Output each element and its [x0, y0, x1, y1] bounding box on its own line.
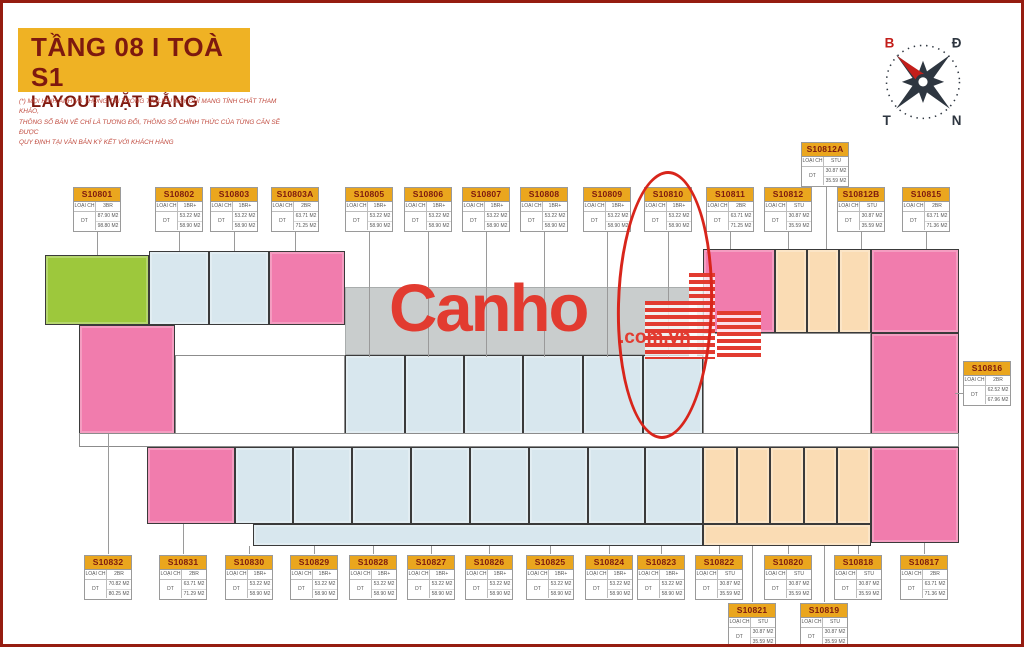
- floorplan-page: TẦNG 08 I TOÀ S1 LAYOUT MẶT BẰNG (*) MỌI…: [0, 0, 1024, 647]
- unit-id: S10812B: [838, 188, 884, 202]
- unit-area-label: DT: [211, 212, 233, 230]
- unit-area-value-2: 58.90 M2: [178, 222, 202, 231]
- leader-line-s10803a: [295, 232, 296, 251]
- leader-line-s10812a: [826, 187, 827, 249]
- unit-type-label: LOẠI CH: [838, 202, 860, 211]
- unit-type-label: LOẠI CH: [350, 570, 372, 579]
- plan-block-s10801: [45, 255, 149, 325]
- leader-line-s10805: [369, 232, 370, 357]
- unit-area-label: DT: [838, 212, 860, 230]
- unit-area-value-1: 30.87 M2: [787, 580, 811, 590]
- unit-type-label: LOẠI CH: [707, 202, 729, 211]
- unit-card-s10827: S10827 LOẠI CH 1BR+ DT 53.22 M2 58.90 M2: [407, 555, 455, 600]
- unit-area-label: DT: [765, 580, 787, 598]
- unit-type-label: LOẠI CH: [527, 570, 549, 579]
- unit-type-value: 1BR+: [660, 570, 684, 579]
- unit-area-value-2: 58.90 M2: [549, 590, 573, 599]
- unit-card-s10818: S10818 LOẠI CH STU DT 30.87 M2 35.59 M2: [834, 555, 882, 600]
- unit-id: S10823: [638, 556, 684, 570]
- unit-type-value: 1BR+: [372, 570, 396, 579]
- unit-card-s10807: S10807 LOẠI CH 1BR+ DT 53.22 M2 58.90 M2: [462, 187, 510, 232]
- unit-card-s10825: S10825 LOẠI CH 1BR+ DT 53.22 M2 58.90 M2: [526, 555, 574, 600]
- unit-area-value-2: 71.25 M2: [294, 222, 318, 231]
- disclaimer-line: THÔNG SỐ BẢN VẼ CHỈ LÀ TƯƠNG ĐỐI, THÔNG …: [19, 118, 289, 139]
- unit-type-label: LOẠI CH: [584, 202, 606, 211]
- unit-area-value-2: 71.29 M2: [182, 590, 206, 599]
- unit-id: S10831: [160, 556, 206, 570]
- unit-area-value-1: 63.71 M2: [729, 212, 753, 222]
- plan-block-s10826: [470, 447, 529, 524]
- unit-type-label: LOẠI CH: [586, 570, 608, 579]
- unit-type-value: STU: [718, 570, 742, 579]
- plan-block-s10805: [345, 355, 405, 434]
- unit-area-value-1: 53.22 M2: [485, 212, 509, 222]
- unit-area-value-1: 30.87 M2: [857, 580, 881, 590]
- unit-area-label: DT: [160, 580, 182, 598]
- unit-id: S10812A: [802, 143, 848, 157]
- leader-line-s10823: [661, 546, 662, 554]
- plan-block-corridor: [79, 433, 959, 447]
- disclaimer-line: (*) MỌI HÌNH ẢNH VÀ THÔNG TIN TRONG TÀI …: [19, 97, 289, 118]
- unit-id: S10828: [350, 556, 396, 570]
- unit-type-label: LOẠI CH: [765, 570, 787, 579]
- unit-type-label: LOẠI CH: [964, 376, 986, 385]
- compass-south-label: N: [952, 113, 962, 128]
- unit-id: S10826: [466, 556, 512, 570]
- unit-area-value-1: 63.71 M2: [923, 580, 947, 590]
- unit-id: S10832: [85, 556, 131, 570]
- leader-line-s10815: [926, 232, 927, 249]
- unit-type-value: STU: [787, 570, 811, 579]
- unit-area-value-2: 98.80 M2: [96, 222, 120, 231]
- leader-line-s10806: [428, 232, 429, 357]
- unit-area-value-2: 58.90 M2: [660, 590, 684, 599]
- unit-type-label: LOẠI CH: [801, 618, 823, 627]
- unit-area-label: DT: [964, 386, 986, 404]
- plan-block-s10825: [529, 447, 588, 524]
- unit-area-label: DT: [405, 212, 427, 230]
- unit-area-value-1: 62.52 M2: [986, 386, 1010, 396]
- unit-area-value-1: 53.22 M2: [368, 212, 392, 222]
- plan-block-s10819: [804, 447, 837, 524]
- unit-area-value-1: 63.71 M2: [925, 212, 949, 222]
- unit-id: S10825: [527, 556, 573, 570]
- unit-id: S10811: [707, 188, 753, 202]
- unit-area-label: DT: [707, 212, 729, 230]
- plan-block-s10812: [775, 249, 807, 333]
- unit-area-value-2: 58.90 M2: [430, 590, 454, 599]
- unit-area-value-1: 63.71 M2: [294, 212, 318, 222]
- unit-type-label: LOẠI CH: [521, 202, 543, 211]
- plan-block-s10817: [871, 447, 959, 543]
- unit-card-s10830: S10830 LOẠI CH 1BR+ DT 53.22 M2 58.90 M2: [225, 555, 273, 600]
- unit-area-value-2: 58.90 M2: [368, 222, 392, 231]
- plan-block-core-right: [703, 333, 871, 434]
- unit-type-label: LOẠI CH: [901, 570, 923, 579]
- unit-type-label: LOẠI CH: [226, 570, 248, 579]
- unit-card-s10805: S10805 LOẠI CH 1BR+ DT 53.22 M2 58.90 M2: [345, 187, 393, 232]
- unit-area-label: DT: [85, 580, 107, 598]
- unit-area-value-2: 80.25 M2: [107, 590, 131, 599]
- unit-area-value-1: 30.87 M2: [751, 628, 775, 638]
- unit-type-label: LOẠI CH: [85, 570, 107, 579]
- unit-card-s10832: S10832 LOẠI CH 2BR DT 70.82 M2 80.25 M2: [84, 555, 132, 600]
- unit-card-s10821: S10821 LOẠI CH STU DT 30.87 M2 35.59 M2: [728, 603, 776, 647]
- unit-area-value-1: 53.22 M2: [427, 212, 451, 222]
- plan-block-s10808: [523, 355, 583, 434]
- plan-block-s10803: [209, 251, 269, 325]
- unit-type-value: 1BR+: [485, 202, 509, 211]
- unit-type-value: 1BR+: [430, 570, 454, 579]
- unit-area-value-1: 30.87 M2: [718, 580, 742, 590]
- unit-area-value-1: 30.87 M2: [787, 212, 811, 222]
- unit-area-value-1: 63.71 M2: [182, 580, 206, 590]
- unit-id: S10819: [801, 604, 847, 618]
- unit-type-value: 1BR+: [248, 570, 272, 579]
- unit-type-value: 1BR+: [368, 202, 392, 211]
- unit-area-value-2: 58.90 M2: [485, 222, 509, 231]
- unit-id: S10829: [291, 556, 337, 570]
- unit-id: S10815: [903, 188, 949, 202]
- leader-line-s10807: [486, 232, 487, 357]
- unit-id: S10809: [584, 188, 630, 202]
- unit-area-value-1: 53.22 M2: [248, 580, 272, 590]
- unit-type-value: STU: [823, 618, 847, 627]
- leader-line-s10816: [955, 393, 963, 394]
- unit-card-s10809: S10809 LOẠI CH 1BR+ DT 53.22 M2 58.90 M2: [583, 187, 631, 232]
- unit-type-value: 1BR+: [488, 570, 512, 579]
- unit-id: S10805: [346, 188, 392, 202]
- plan-block-s10807: [464, 355, 523, 434]
- unit-area-value-2: 58.90 M2: [248, 590, 272, 599]
- unit-area-value-1: 30.87 M2: [860, 212, 884, 222]
- unit-area-value-2: 35.59 M2: [787, 222, 811, 231]
- unit-area-label: DT: [272, 212, 294, 230]
- unit-area-label: DT: [584, 212, 606, 230]
- unit-area-value-2: 58.90 M2: [488, 590, 512, 599]
- unit-id: S10801: [74, 188, 120, 202]
- leader-line-s10821: [752, 546, 753, 602]
- unit-area-value-1: 53.22 M2: [608, 580, 632, 590]
- unit-type-value: STU: [787, 202, 811, 211]
- disclaimer-line: QUY ĐỊNH TẠI VĂN BẢN KÝ KẾT VỚI KHÁCH HÀ…: [19, 138, 289, 148]
- plan-block-s10818: [837, 447, 871, 524]
- plan-block-s10806: [405, 355, 464, 434]
- plan-block-s10823: [645, 447, 703, 524]
- leader-line-s10831: [183, 524, 184, 554]
- unit-card-s10812b: S10812B LOẠI CH STU DT 30.87 M2 35.59 M2: [837, 187, 885, 232]
- leader-line-s10825: [550, 546, 551, 554]
- unit-type-label: LOẠI CH: [638, 570, 660, 579]
- unit-card-s10817: S10817 LOẠI CH 2BR DT 63.71 M2 71.36 M2: [900, 555, 948, 600]
- unit-area-label: DT: [74, 212, 96, 230]
- plan-block-s10820: [770, 447, 804, 524]
- leader-line-s10819: [824, 546, 825, 602]
- unit-area-label: DT: [346, 212, 368, 230]
- leader-line-s10812b: [861, 232, 862, 249]
- plan-block-s10829: [293, 447, 352, 524]
- leader-line-s10828: [373, 546, 374, 554]
- unit-id: S10830: [226, 556, 272, 570]
- unit-type-label: LOẠI CH: [211, 202, 233, 211]
- unit-type-label: LOẠI CH: [160, 570, 182, 579]
- unit-type-label: LOẠI CH: [272, 202, 294, 211]
- unit-type-value: 2BR: [923, 570, 947, 579]
- plan-block-s10802: [149, 251, 209, 325]
- unit-type-value: 1BR+: [233, 202, 257, 211]
- unit-area-value-2: 67.96 M2: [986, 396, 1010, 405]
- plan-block-s10824: [588, 447, 645, 524]
- unit-area-value-1: 87.90 M2: [96, 212, 120, 222]
- unit-type-label: LOẠI CH: [802, 157, 824, 166]
- leader-line-s10820: [788, 546, 789, 554]
- leader-line-s10826: [489, 546, 490, 554]
- unit-id: S10807: [463, 188, 509, 202]
- plan-block-s10830: [235, 447, 293, 524]
- unit-area-label: DT: [765, 212, 787, 230]
- unit-area-label: DT: [729, 628, 751, 646]
- unit-area-value-1: 53.22 M2: [606, 212, 630, 222]
- unit-id: S10824: [586, 556, 632, 570]
- unit-area-value-2: 71.36 M2: [925, 222, 949, 231]
- unit-area-label: DT: [350, 580, 372, 598]
- unit-type-value: 1BR+: [427, 202, 451, 211]
- plan-block-s10816: [871, 333, 959, 434]
- plan-block-s10811: [703, 249, 775, 333]
- unit-type-label: LOẠI CH: [466, 570, 488, 579]
- unit-id: S10822: [696, 556, 742, 570]
- unit-type-label: LOẠI CH: [346, 202, 368, 211]
- unit-area-value-2: 35.59 M2: [824, 177, 848, 186]
- unit-card-s10829: S10829 LOẠI CH 1BR+ DT 53.22 M2 58.90 M2: [290, 555, 338, 600]
- unit-type-value: 3BR: [96, 202, 120, 211]
- plan-block-s10812b: [839, 249, 871, 333]
- unit-id: S10821: [729, 604, 775, 618]
- leader-line-s10802: [179, 232, 180, 251]
- unit-area-label: DT: [835, 580, 857, 598]
- unit-card-s10822: S10822 LOẠI CH STU DT 30.87 M2 35.59 M2: [695, 555, 743, 600]
- unit-area-label: DT: [291, 580, 313, 598]
- unit-area-label: DT: [901, 580, 923, 598]
- unit-area-label: DT: [466, 580, 488, 598]
- unit-area-label: DT: [463, 212, 485, 230]
- leader-line-s10830: [249, 546, 250, 554]
- leader-line-s10829: [314, 546, 315, 554]
- plan-block-s10803a: [269, 251, 345, 325]
- unit-id: S10806: [405, 188, 451, 202]
- unit-card-s10802: S10802 LOẠI CH 1BR+ DT 53.22 M2 58.90 M2: [155, 187, 203, 232]
- unit-type-value: 1BR+: [543, 202, 567, 211]
- unit-card-s10801: S10801 LOẠI CH 3BR DT 87.90 M2 98.80 M2: [73, 187, 121, 232]
- unit-area-label: DT: [521, 212, 543, 230]
- unit-area-label: DT: [226, 580, 248, 598]
- unit-card-s10824: S10824 LOẠI CH 1BR+ DT 53.22 M2 58.90 M2: [585, 555, 633, 600]
- unit-card-s10811: S10811 LOẠI CH 2BR DT 63.71 M2 71.25 M2: [706, 187, 754, 232]
- compass-icon: B Đ T N: [875, 27, 971, 133]
- unit-area-value-1: 53.22 M2: [488, 580, 512, 590]
- unit-area-value-1: 53.22 M2: [543, 212, 567, 222]
- unit-area-value-1: 53.22 M2: [430, 580, 454, 590]
- unit-area-label: DT: [638, 580, 660, 598]
- unit-area-value-1: 53.22 M2: [660, 580, 684, 590]
- unit-card-s10806: S10806 LOẠI CH 1BR+ DT 53.22 M2 58.90 M2: [404, 187, 452, 232]
- plan-block-s10812a: [807, 249, 839, 333]
- leader-line-s10822: [719, 546, 720, 554]
- unit-id: S10803A: [272, 188, 318, 202]
- leader-line-s10832: [108, 434, 109, 554]
- unit-area-label: DT: [156, 212, 178, 230]
- unit-area-value-2: 71.25 M2: [729, 222, 753, 231]
- unit-card-s10828: S10828 LOẠI CH 1BR+ DT 53.22 M2 58.90 M2: [349, 555, 397, 600]
- unit-card-s10803: S10803 LOẠI CH 1BR+ DT 53.22 M2 58.90 M2: [210, 187, 258, 232]
- unit-type-value: STU: [860, 202, 884, 211]
- unit-card-s10816: S10816 LOẠI CH 2BR DT 62.52 M2 67.96 M2: [963, 361, 1011, 406]
- leader-line-s10803: [234, 232, 235, 251]
- unit-area-label: DT: [527, 580, 549, 598]
- unit-type-value: 2BR: [729, 202, 753, 211]
- unit-type-value: 1BR+: [313, 570, 337, 579]
- unit-type-label: LOẠI CH: [765, 202, 787, 211]
- unit-card-s10808: S10808 LOẠI CH 1BR+ DT 53.22 M2 58.90 M2: [520, 187, 568, 232]
- unit-type-value: STU: [824, 157, 848, 166]
- unit-id: S10812: [765, 188, 811, 202]
- leader-line-s10818: [858, 546, 859, 554]
- compass-north-label: B: [885, 35, 895, 50]
- plan-block-s10822: [703, 447, 737, 524]
- unit-type-value: 1BR+: [606, 202, 630, 211]
- plan-block-ledge-peach: [703, 524, 871, 546]
- unit-type-value: 1BR+: [178, 202, 202, 211]
- unit-area-label: DT: [696, 580, 718, 598]
- leader-line-s10809: [607, 232, 608, 357]
- plan-block-core-left: [175, 355, 345, 434]
- leader-line-s10801: [97, 232, 98, 255]
- unit-area-label: DT: [801, 628, 823, 646]
- unit-type-value: 2BR: [925, 202, 949, 211]
- unit-area-value-2: 71.36 M2: [923, 590, 947, 599]
- unit-id: S10817: [901, 556, 947, 570]
- unit-area-value-2: 35.59 M2: [751, 638, 775, 647]
- compass-west-label: T: [883, 113, 892, 128]
- unit-area-value-2: 58.90 M2: [543, 222, 567, 231]
- unit-type-value: STU: [857, 570, 881, 579]
- unit-card-s10819: S10819 LOẠI CH STU DT 30.87 M2 35.59 M2: [800, 603, 848, 647]
- unit-area-label: DT: [802, 167, 824, 185]
- leader-line-s10812: [788, 232, 789, 249]
- plan-block-s10815: [871, 249, 959, 333]
- unit-type-label: LOẠI CH: [408, 570, 430, 579]
- unit-type-value: 1BR+: [608, 570, 632, 579]
- leader-line-s10811: [730, 232, 731, 249]
- unit-area-value-2: 58.90 M2: [372, 590, 396, 599]
- unit-card-s10815: S10815 LOẠI CH 2BR DT 63.71 M2 71.36 M2: [902, 187, 950, 232]
- unit-type-label: LOẠI CH: [156, 202, 178, 211]
- unit-area-value-1: 53.22 M2: [549, 580, 573, 590]
- unit-id: S10820: [765, 556, 811, 570]
- unit-card-s10826: S10826 LOẠI CH 1BR+ DT 53.22 M2 58.90 M2: [465, 555, 513, 600]
- unit-area-value-1: 30.87 M2: [823, 628, 847, 638]
- unit-card-s10823: S10823 LOẠI CH 1BR+ DT 53.22 M2 58.90 M2: [637, 555, 685, 600]
- unit-area-value-1: 70.82 M2: [107, 580, 131, 590]
- title-block: TẦNG 08 I TOÀ S1 LAYOUT MẶT BẰNG: [18, 28, 250, 92]
- leader-line-s10817: [924, 543, 925, 554]
- unit-area-value-2: 35.59 M2: [787, 590, 811, 599]
- unit-id: S10827: [408, 556, 454, 570]
- unit-area-value-2: 35.59 M2: [718, 590, 742, 599]
- unit-area-value-2: 35.59 M2: [860, 222, 884, 231]
- unit-type-label: LOẠI CH: [696, 570, 718, 579]
- unit-id: S10808: [521, 188, 567, 202]
- unit-type-label: LOẠI CH: [405, 202, 427, 211]
- unit-type-label: LOẠI CH: [74, 202, 96, 211]
- unit-area-label: DT: [586, 580, 608, 598]
- unit-id: S10802: [156, 188, 202, 202]
- disclaimer-text: (*) MỌI HÌNH ẢNH VÀ THÔNG TIN TRONG TÀI …: [19, 97, 289, 148]
- unit-type-value: 2BR: [294, 202, 318, 211]
- unit-area-value-2: 35.59 M2: [857, 590, 881, 599]
- plan-block-s10827: [411, 447, 470, 524]
- plan-block-s10821: [737, 447, 770, 524]
- unit-type-value: 2BR: [986, 376, 1010, 385]
- leader-line-s10808: [544, 232, 545, 357]
- unit-type-value: 2BR: [182, 570, 206, 579]
- unit-type-label: LOẠI CH: [729, 618, 751, 627]
- unit-area-label: DT: [903, 212, 925, 230]
- unit-type-label: LOẠI CH: [463, 202, 485, 211]
- unit-card-s10831: S10831 LOẠI CH 2BR DT 63.71 M2 71.29 M2: [159, 555, 207, 600]
- unit-card-s10820: S10820 LOẠI CH STU DT 30.87 M2 35.59 M2: [764, 555, 812, 600]
- unit-area-label: DT: [408, 580, 430, 598]
- unit-type-value: STU: [751, 618, 775, 627]
- unit-card-s10812: S10812 LOẠI CH STU DT 30.87 M2 35.59 M2: [764, 187, 812, 232]
- plan-block-ledge-blue: [253, 524, 703, 546]
- unit-type-label: LOẠI CH: [835, 570, 857, 579]
- unit-area-value-1: 53.22 M2: [372, 580, 396, 590]
- unit-area-value-2: 58.90 M2: [313, 590, 337, 599]
- plan-block-s10832: [79, 325, 175, 434]
- unit-card-s10803a: S10803A LOẠI CH 2BR DT 63.71 M2 71.25 M2: [271, 187, 319, 232]
- unit-type-label: LOẠI CH: [291, 570, 313, 579]
- unit-area-value-1: 53.22 M2: [313, 580, 337, 590]
- plan-block-s10831: [147, 447, 235, 524]
- unit-area-value-1: 53.22 M2: [178, 212, 202, 222]
- unit-card-s10812a: S10812A LOẠI CH STU DT 30.87 M2 35.59 M2: [801, 142, 849, 187]
- unit-type-label: LOẠI CH: [903, 202, 925, 211]
- page-title: TẦNG 08 I TOÀ S1: [31, 32, 250, 92]
- unit-id: S10818: [835, 556, 881, 570]
- compass-east-label: Đ: [952, 35, 962, 50]
- unit-area-value-2: 58.90 M2: [608, 590, 632, 599]
- plan-block-s10828: [352, 447, 411, 524]
- unit-id: S10803: [211, 188, 257, 202]
- unit-area-value-2: 35.59 M2: [823, 638, 847, 647]
- leader-line-s10824: [609, 546, 610, 554]
- unit-area-value-1: 53.22 M2: [233, 212, 257, 222]
- unit-type-value: 2BR: [107, 570, 131, 579]
- unit-area-value-1: 30.87 M2: [824, 167, 848, 177]
- unit-type-value: 1BR+: [549, 570, 573, 579]
- unit-id: S10816: [964, 362, 1010, 376]
- leader-line-s10827: [431, 546, 432, 554]
- unit-area-value-2: 58.90 M2: [233, 222, 257, 231]
- unit-area-value-2: 58.90 M2: [427, 222, 451, 231]
